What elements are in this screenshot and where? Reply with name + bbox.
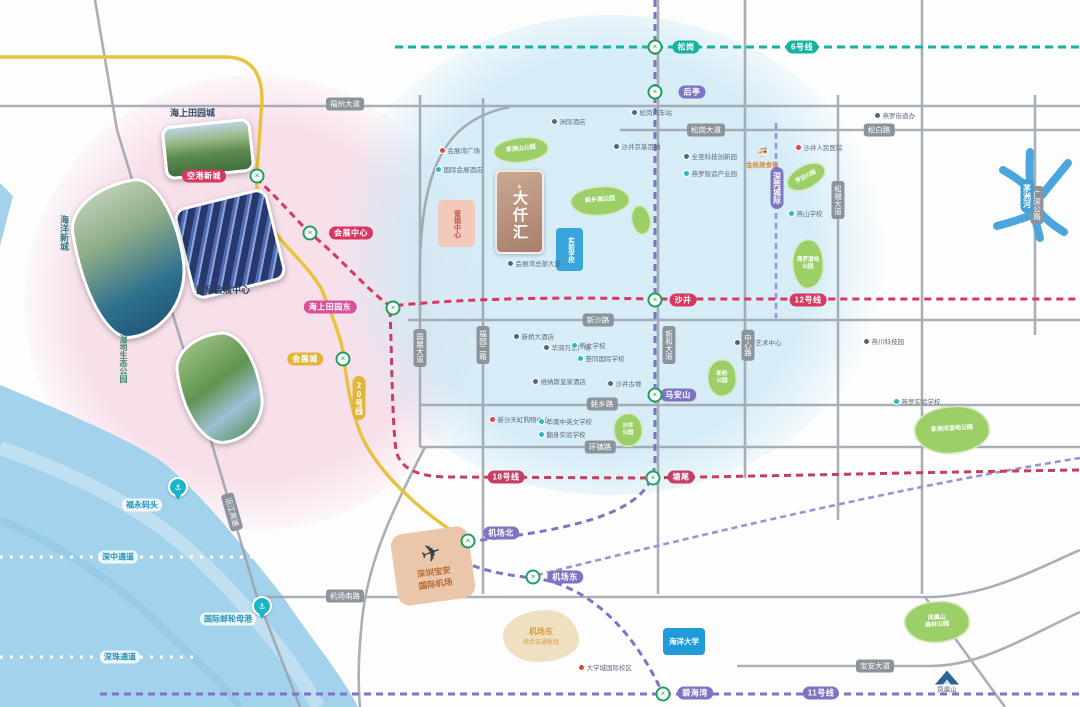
- metro-badge: 12号线: [790, 294, 827, 307]
- poi-dot-icon: [490, 417, 495, 422]
- airport-east-hub-block: 机场东 综合交通枢纽: [503, 610, 579, 662]
- poi-dot-icon: [544, 345, 549, 350]
- metro-station-icon: ✕: [648, 388, 663, 403]
- sales-center-label: 营销中心: [452, 210, 462, 238]
- poi-dot-icon: [614, 144, 619, 149]
- poi-dot-icon: [440, 148, 445, 153]
- poi-dot-icon: [552, 119, 557, 124]
- sales-center-block: 营销中心: [438, 200, 475, 247]
- poi-item: 会展湾总部大厦: [508, 258, 561, 268]
- poi-item: 崇文学校: [572, 340, 606, 350]
- poi-item: 松岗汽车站: [632, 107, 672, 117]
- metro-station-icon: ✕: [648, 85, 663, 100]
- hub-name-line1: 机场东: [529, 626, 553, 637]
- metro-badge: 空港新城: [182, 170, 226, 183]
- metro-badge: 机场北: [483, 527, 519, 540]
- water-label: 深珠通道: [100, 651, 140, 664]
- road-badge: 国展大道: [414, 329, 427, 367]
- metro-station-icon: ✕: [646, 471, 661, 486]
- road-badge: 新和大道: [663, 326, 676, 364]
- road-badge: 蚝乡路: [587, 398, 618, 411]
- university-block: 海洋大学: [663, 628, 705, 655]
- poi-dot-icon: [508, 261, 513, 266]
- poi-dot-icon: [796, 145, 801, 150]
- metro-badge: 后亭: [679, 86, 706, 99]
- poi-label: 会展湾广场: [448, 145, 481, 155]
- poi-dot-icon: [539, 419, 544, 424]
- poi-dot-icon: [572, 343, 577, 348]
- poi-dot-icon: [539, 432, 544, 437]
- poi-item: 沙井人民医院: [796, 142, 843, 152]
- metro-badge: 6号线: [786, 41, 818, 54]
- poi-item: 翻身实验学校: [539, 429, 586, 439]
- poi-label: 荟同国际学校: [586, 353, 625, 363]
- poi-dot-icon: [514, 334, 519, 339]
- ocean-city-caption: 海洋新城: [58, 215, 71, 251]
- poi-dot-icon: [436, 167, 441, 172]
- metro-badge: 海上田园东: [304, 301, 357, 314]
- poi-label: 松岗汽车站: [640, 107, 673, 117]
- port-pin-icon: ⚓: [252, 596, 272, 616]
- metro-badge: 会展中心: [329, 227, 373, 240]
- hub-name-line2: 综合交通枢纽: [523, 637, 559, 646]
- metro-station-icon: ✕: [526, 570, 541, 585]
- line-18: [390, 310, 1080, 478]
- poi-dot-icon: [789, 211, 794, 216]
- metro-badge: 20号线: [353, 376, 366, 420]
- poi-item: 全至科技创新园: [684, 151, 737, 161]
- poi-item: 会展湾广场: [440, 145, 480, 155]
- metro-station-icon: ✕: [336, 352, 351, 367]
- project-logo-block: ▲ 大仟汇: [495, 170, 544, 254]
- poi-label: 国际会展酒店: [444, 164, 483, 174]
- park-area: 新桥 公园: [707, 359, 737, 397]
- poi-dot-icon: [632, 110, 637, 115]
- poi-label: 燕罗街道办: [883, 110, 916, 120]
- map-base-layer: [0, 0, 1080, 707]
- poi-item: 大学城国际校区: [579, 662, 632, 672]
- water-label: 深中通道: [98, 551, 138, 564]
- mountain-label: 凤凰山: [935, 684, 959, 694]
- water-label: 福永码头: [122, 499, 162, 512]
- wetland-caption: 湿地生态公园: [118, 335, 129, 383]
- metro-badge: 11号线: [803, 687, 839, 700]
- road-badge: 环镇路: [585, 441, 616, 454]
- metro-station-icon: ✕: [648, 40, 663, 55]
- metro-station-icon: ✕: [386, 301, 401, 316]
- logo-mark-icon: ▲: [516, 183, 523, 190]
- metro-badge: 碧海湾: [677, 687, 713, 700]
- poi-label: 燕罗实验学校: [902, 396, 941, 406]
- poi-label: 燕山学校: [797, 208, 823, 218]
- poi-dot-icon: [579, 665, 584, 670]
- poi-item: 燕罗街道办: [875, 110, 915, 120]
- metro-station-icon: ✕: [648, 293, 663, 308]
- metro-badge: 18号线: [488, 471, 525, 484]
- park-area: 沙井 公园: [613, 413, 643, 447]
- poi-item: 燕山学校: [789, 208, 823, 218]
- poi-item: 燕川科技园: [864, 336, 904, 346]
- poi-label: 翻身实验学校: [547, 429, 586, 439]
- metro-badge: 茅洲河: [1021, 179, 1034, 213]
- port-pin-icon: ⚓: [168, 477, 188, 497]
- mountain-marker: 凤凰山: [935, 659, 959, 694]
- park-area: 燕罗湿地 公园: [792, 239, 824, 289]
- poi-label: 华南中英文学校: [547, 416, 593, 426]
- metro-badge: 机场东: [547, 571, 583, 584]
- poi-dot-icon: [735, 340, 740, 345]
- poi-label: 维纳斯皇家酒店: [541, 376, 587, 386]
- poi-label: 崇文学校: [580, 340, 606, 350]
- poi-item: 国际会展酒店: [436, 164, 483, 174]
- sea-wedge: [0, 183, 13, 246]
- poi-item: 燕罗实验学校: [894, 396, 941, 406]
- road-badge: 宝安大道: [856, 660, 894, 673]
- school-label: 实验学校: [565, 237, 575, 263]
- poi-item: 新桥大酒店: [514, 331, 554, 341]
- poi-item: 洲际酒店: [552, 116, 586, 126]
- metro-badge: 深莞城际: [771, 167, 784, 209]
- road-badge: 松福大道: [832, 181, 845, 219]
- road-badge: 松白路: [864, 124, 895, 137]
- line-12: [256, 178, 1080, 306]
- road-badge: 中心路: [742, 330, 755, 361]
- metro-badge: 塘尾: [668, 471, 695, 484]
- road-badge: 机场南路: [326, 590, 364, 603]
- poi-label: 洲际酒店: [560, 116, 586, 126]
- road-badge: 松岗大道: [687, 124, 725, 137]
- road-badge: 新沙路: [583, 314, 614, 327]
- mountain-icon: [935, 659, 959, 685]
- poi-label: 新桥大酒店: [522, 331, 555, 341]
- waterlands-caption: 海上田园城: [170, 106, 215, 119]
- poi-label: 大学城国际校区: [587, 662, 633, 672]
- road-badge: 福园二路: [477, 326, 490, 364]
- metro-station-icon: ✕: [656, 687, 671, 702]
- poi-dot-icon: [894, 399, 899, 404]
- poi-item: 华南中英文学校: [539, 416, 592, 426]
- metro-station-icon: ✕: [250, 169, 265, 184]
- poi-item: 燕罗智造产业园: [684, 168, 737, 178]
- water-label: 国际邮轮母港: [200, 613, 256, 626]
- poi-label: 会展湾总部大厦: [516, 258, 562, 268]
- plane-icon: ✈: [418, 540, 445, 569]
- poi-item: 维纳斯皇家酒店: [533, 376, 586, 386]
- poi-label: 全至科技创新园: [692, 151, 738, 161]
- poi-dot-icon: [684, 154, 689, 159]
- poi-item: 沙井古墟: [608, 378, 642, 388]
- metro-station-icon: ✕: [303, 226, 318, 241]
- metro-badge: 马安山: [660, 389, 696, 402]
- food-icon: 🍜: [757, 147, 768, 158]
- metro-badge: 沙井: [670, 294, 697, 307]
- poi-label: 沙井人民医院: [804, 142, 843, 152]
- poi-label: 燕罗智造产业园: [692, 168, 738, 178]
- poi-dot-icon: [684, 171, 689, 176]
- food-poi: 🍜金蚝美食街: [746, 147, 779, 169]
- metro-badge: 松岗: [673, 41, 700, 54]
- poi-label: 燕川科技园: [872, 336, 905, 346]
- poi-label: 沙井古墟: [616, 378, 642, 388]
- poi-dot-icon: [608, 381, 613, 386]
- poi-item: 荟同国际学校: [578, 353, 625, 363]
- poi-dot-icon: [875, 113, 880, 118]
- poi-item: 沙井京基百纳: [614, 141, 661, 151]
- expo-caption: 国际会展中心: [196, 283, 250, 296]
- metro-station-icon: ✕: [461, 534, 476, 549]
- poi-label: 沙井京基百纳: [622, 141, 661, 151]
- poi-dot-icon: [578, 356, 583, 361]
- project-logo-text: 大仟汇: [509, 190, 530, 241]
- metro-badge: 会展城: [287, 353, 323, 366]
- poi-dot-icon: [533, 379, 538, 384]
- location-map: ▲ 大仟汇 营销中心 实验学校 ✈ 深圳宝安 国际机场 机场东 综合交通枢纽 海…: [0, 0, 1080, 707]
- road-badge: 福州大道: [326, 98, 364, 111]
- poi-dot-icon: [864, 339, 869, 344]
